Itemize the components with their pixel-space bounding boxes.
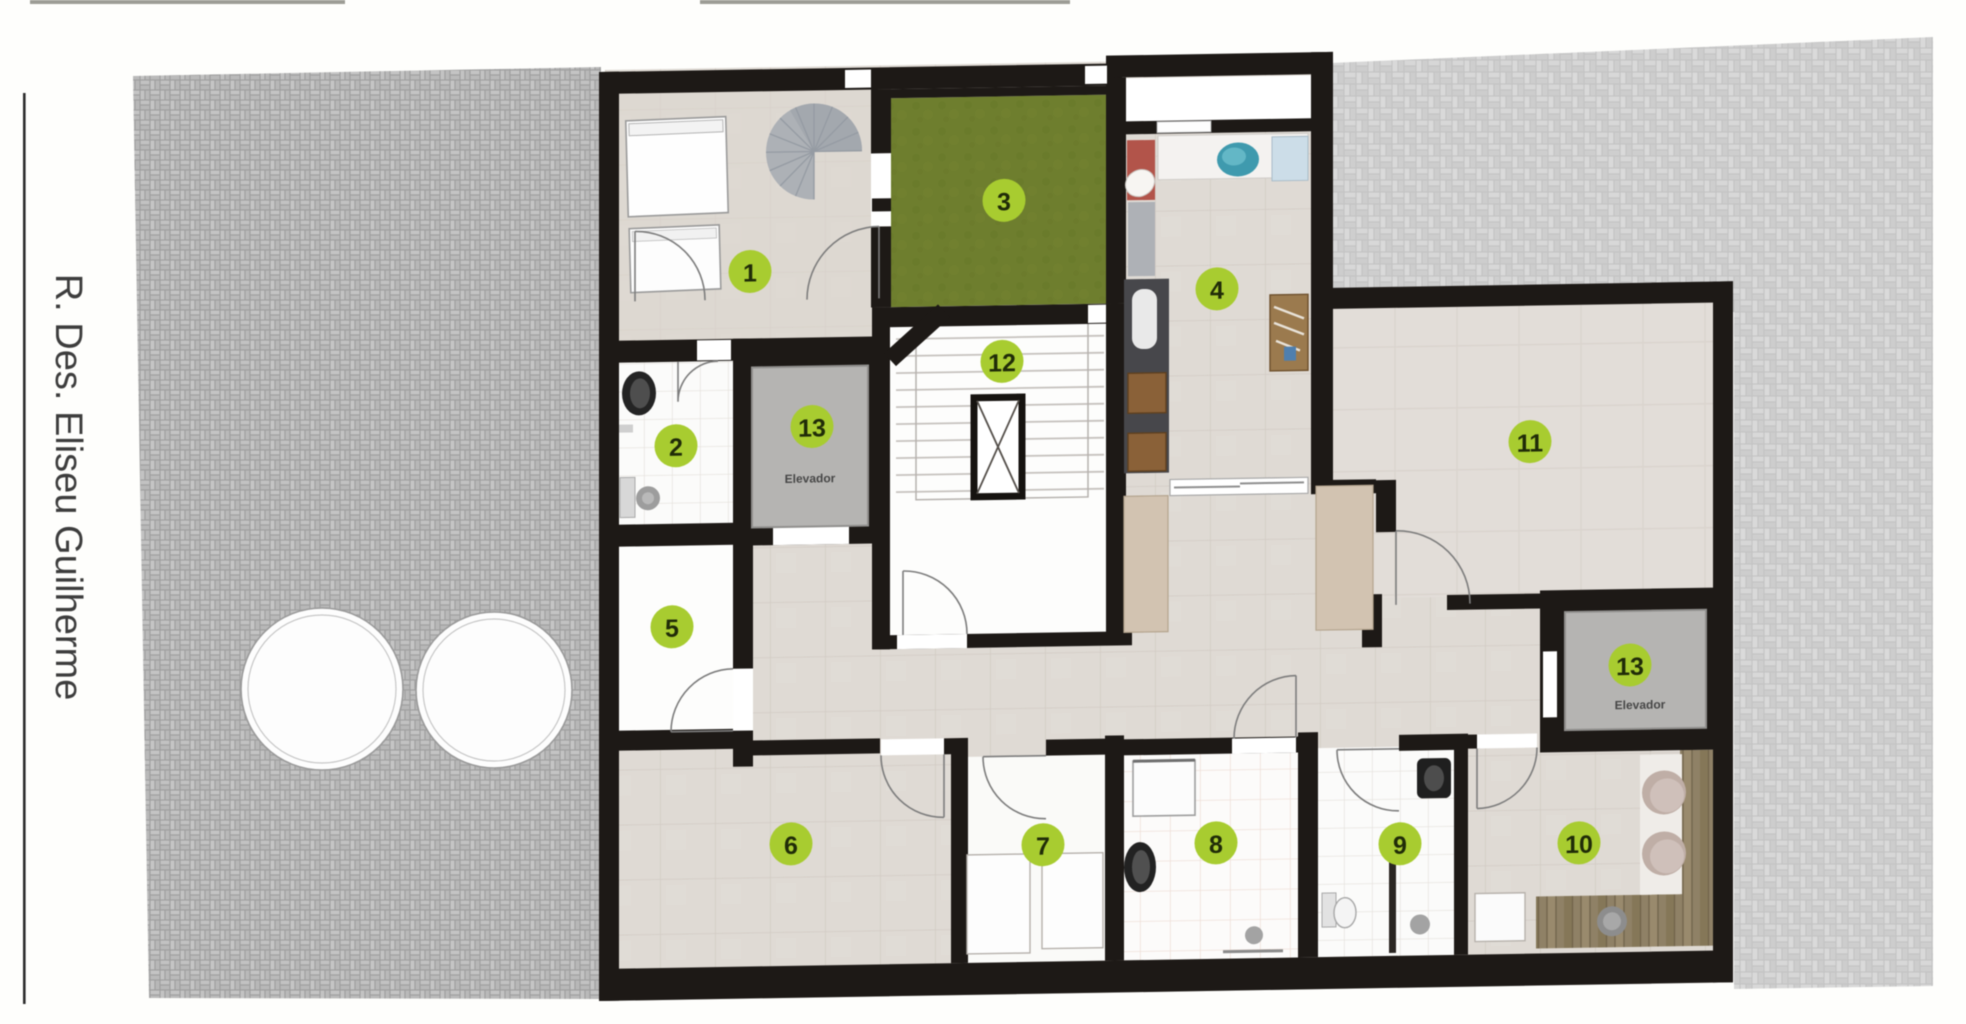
svg-text:9: 9 [1393,832,1407,860]
svg-text:7: 7 [1036,833,1050,861]
svg-text:12: 12 [988,349,1016,377]
svg-text:5: 5 [665,615,679,643]
svg-text:11: 11 [1517,429,1544,457]
svg-text:R. Des. Eliseu Guilherme: R. Des. Eliseu Guilherme [47,274,89,701]
svg-text:2: 2 [669,434,683,462]
svg-text:4: 4 [1210,277,1224,305]
svg-text:13: 13 [798,414,826,442]
svg-text:8: 8 [1209,831,1223,859]
svg-text:13: 13 [1616,653,1644,681]
svg-text:3: 3 [997,188,1011,216]
svg-text:6: 6 [784,832,798,860]
svg-text:1: 1 [743,259,757,287]
svg-text:Elevador: Elevador [785,471,836,486]
svg-text:Elevador: Elevador [1615,697,1666,712]
svg-text:10: 10 [1565,831,1593,859]
